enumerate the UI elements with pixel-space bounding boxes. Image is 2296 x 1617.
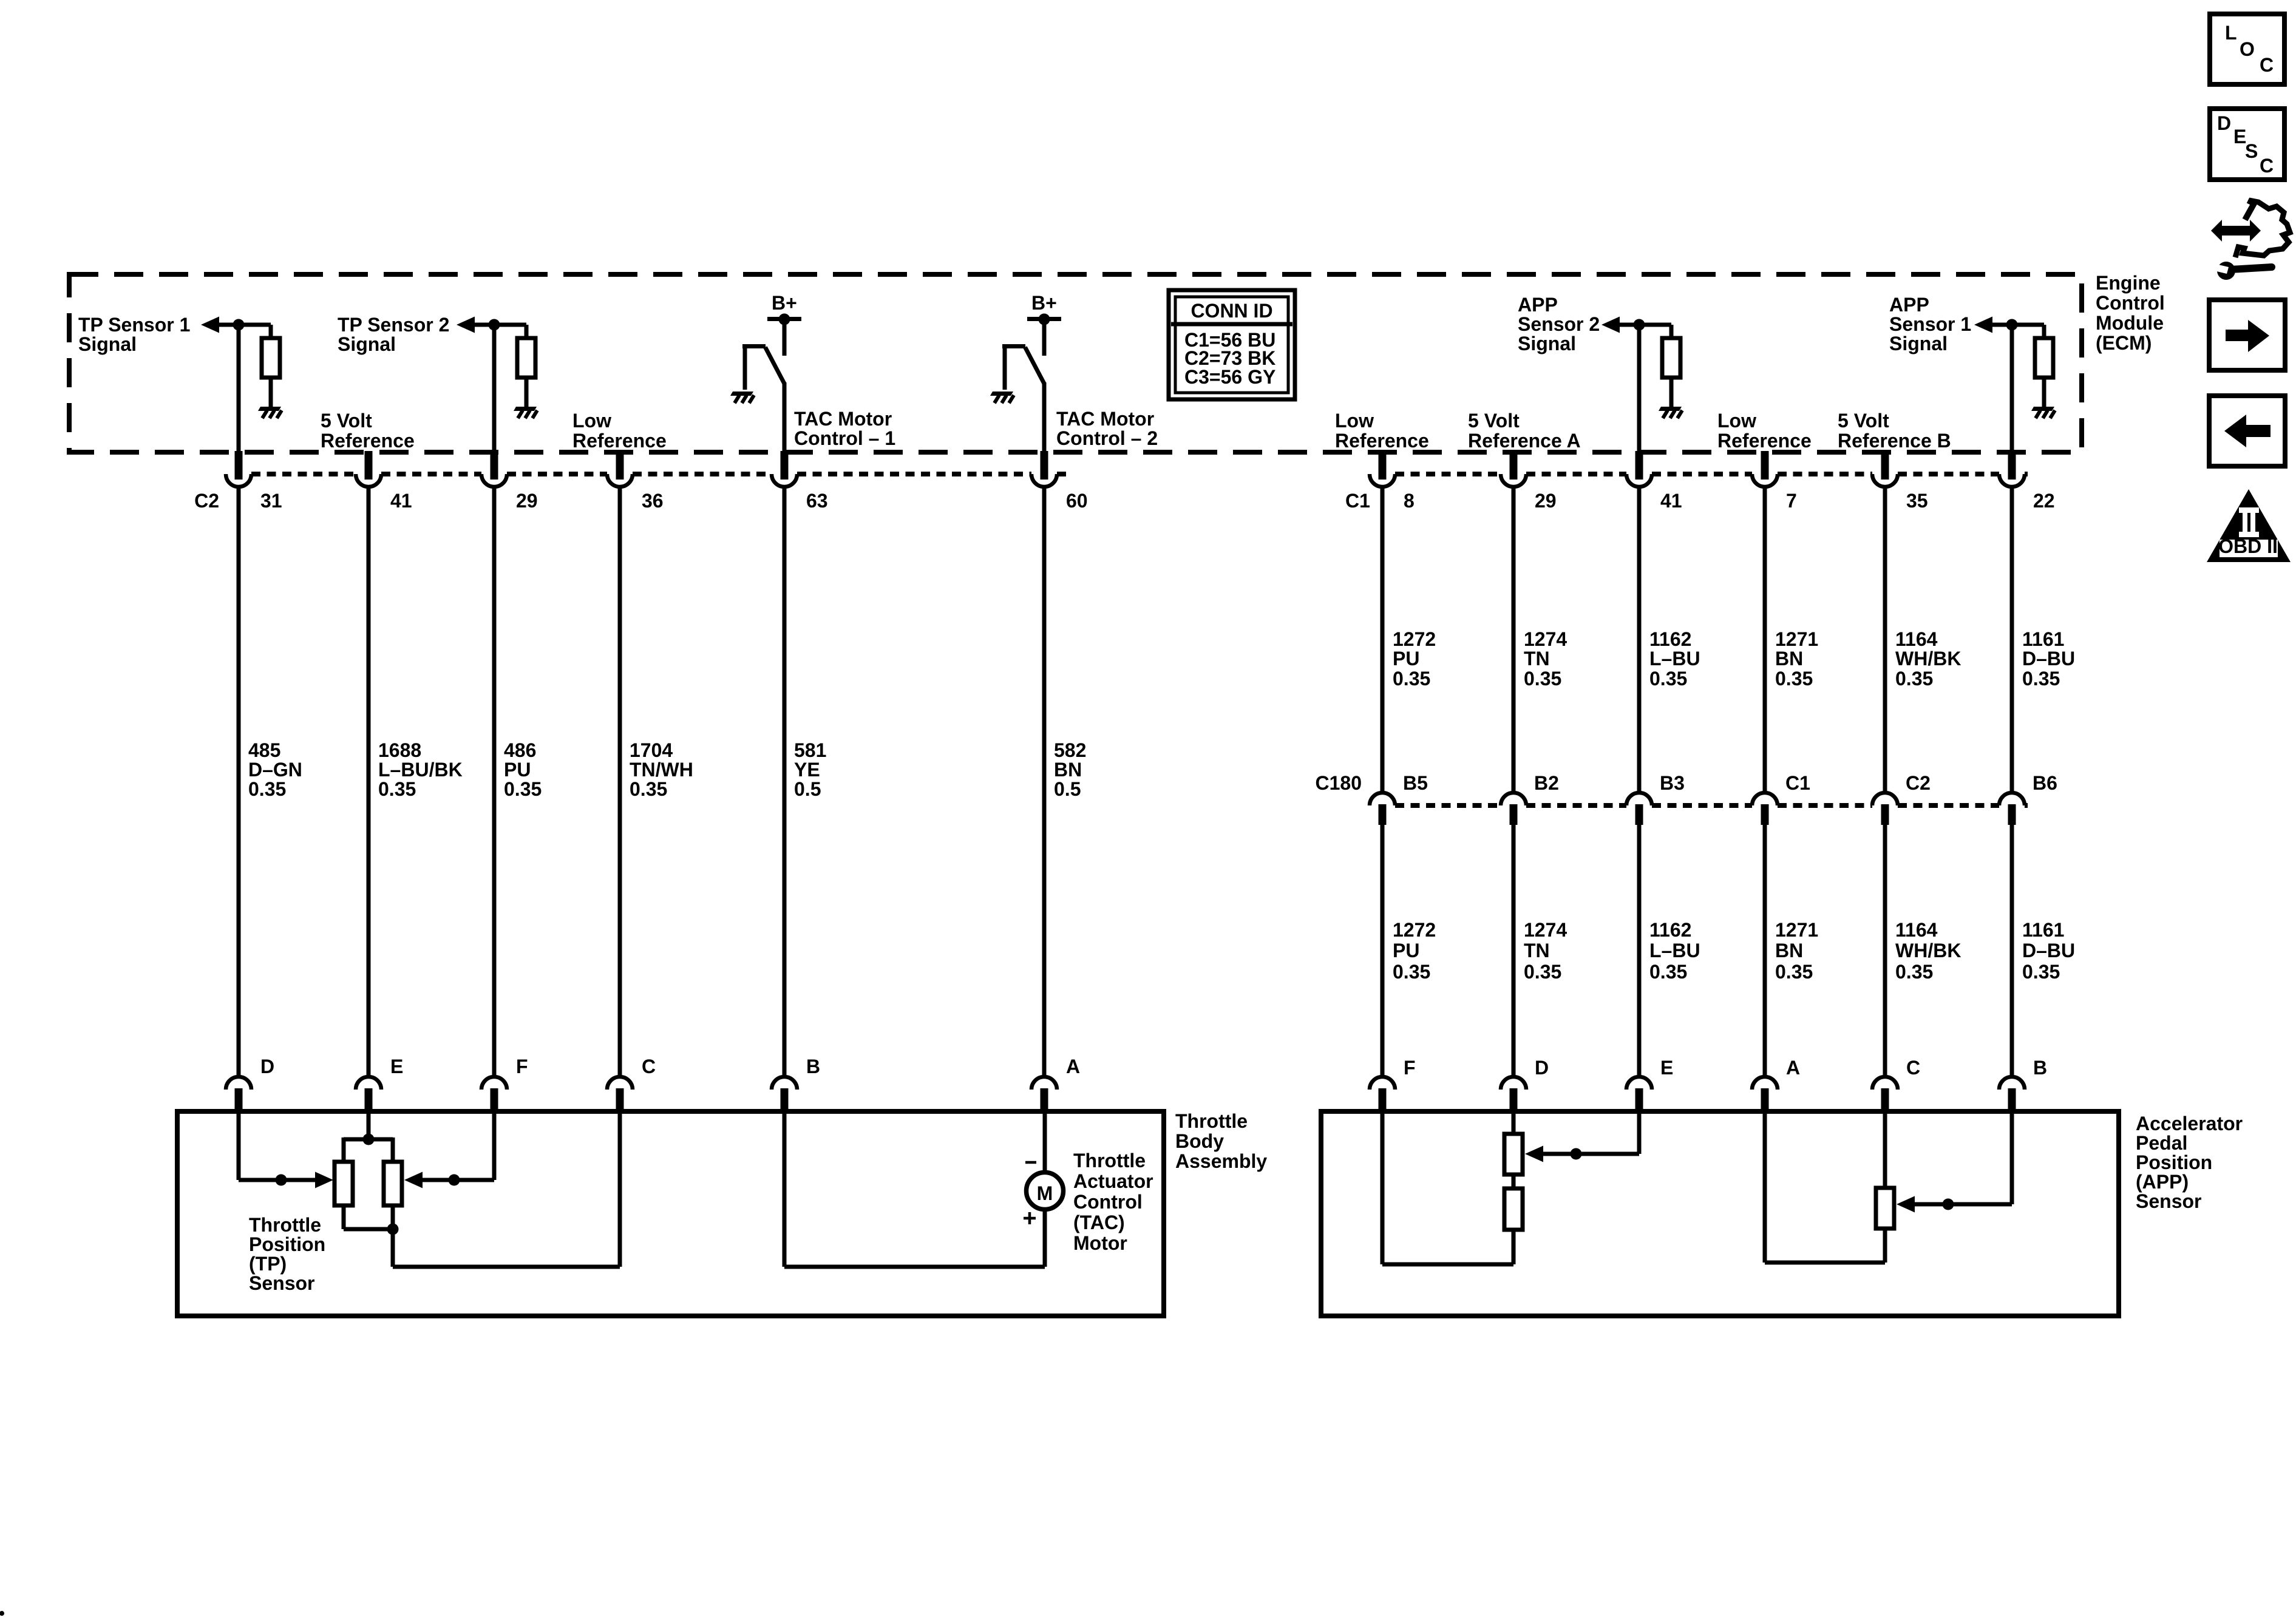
svg-text:C1: C1 bbox=[1785, 772, 1810, 794]
svg-text:Throttle: Throttle bbox=[249, 1214, 321, 1236]
svg-text:E: E bbox=[1660, 1057, 1673, 1079]
svg-text:C2: C2 bbox=[194, 490, 219, 512]
svg-text:0.35: 0.35 bbox=[1524, 961, 1561, 983]
svg-text:1271: 1271 bbox=[1775, 919, 1818, 941]
svg-text:TN/WH: TN/WH bbox=[630, 759, 693, 781]
svg-text:1688: 1688 bbox=[378, 739, 421, 761]
svg-text:YE: YE bbox=[794, 759, 820, 781]
svg-text:1704: 1704 bbox=[630, 739, 673, 761]
svg-text:Assembly: Assembly bbox=[1175, 1150, 1267, 1172]
svg-text:0.35: 0.35 bbox=[1393, 961, 1430, 983]
svg-text:F: F bbox=[516, 1056, 528, 1077]
svg-text:Reference: Reference bbox=[1717, 430, 1812, 452]
svg-text:B+: B+ bbox=[1031, 292, 1057, 314]
svg-text:41: 41 bbox=[390, 490, 412, 512]
svg-text:63: 63 bbox=[806, 490, 828, 512]
svg-text:0.35: 0.35 bbox=[504, 778, 542, 800]
svg-text:5 Volt: 5 Volt bbox=[321, 410, 372, 432]
svg-text:L–BU: L–BU bbox=[1649, 940, 1700, 961]
svg-text:1274: 1274 bbox=[1524, 628, 1567, 650]
svg-text:0.35: 0.35 bbox=[2022, 668, 2060, 690]
svg-text:O: O bbox=[2240, 38, 2255, 60]
svg-text:CONN ID: CONN ID bbox=[1190, 300, 1272, 322]
svg-text:582: 582 bbox=[1054, 739, 1086, 761]
svg-text:Body: Body bbox=[1175, 1130, 1224, 1152]
svg-text:0.5: 0.5 bbox=[794, 778, 821, 800]
svg-text:(ECM): (ECM) bbox=[2096, 332, 2152, 354]
svg-text:Low: Low bbox=[572, 410, 611, 432]
svg-text:(APP): (APP) bbox=[2136, 1171, 2189, 1193]
svg-text:APP: APP bbox=[1518, 294, 1558, 316]
svg-text:(TP): (TP) bbox=[249, 1253, 287, 1275]
svg-text:1271: 1271 bbox=[1775, 628, 1818, 650]
svg-text:TN: TN bbox=[1524, 940, 1550, 961]
svg-text:TP Sensor 2: TP Sensor 2 bbox=[338, 314, 449, 336]
svg-text:Sensor: Sensor bbox=[249, 1272, 314, 1294]
svg-text:WH/BK: WH/BK bbox=[1895, 940, 1961, 961]
svg-text:D–BU: D–BU bbox=[2022, 648, 2075, 670]
svg-text:Signal: Signal bbox=[1889, 333, 1948, 354]
svg-text:Reference B: Reference B bbox=[1838, 430, 1951, 452]
svg-text:TAC Motor: TAC Motor bbox=[794, 408, 892, 430]
svg-text:C3=56 GY: C3=56 GY bbox=[1184, 366, 1275, 388]
svg-text:PU: PU bbox=[504, 759, 531, 781]
svg-text:1161: 1161 bbox=[2022, 628, 2064, 650]
svg-text:Position: Position bbox=[249, 1233, 325, 1255]
svg-text:TN: TN bbox=[1524, 648, 1550, 670]
svg-text:C: C bbox=[642, 1056, 656, 1077]
svg-text:B: B bbox=[2033, 1057, 2047, 1079]
svg-text:C1: C1 bbox=[1345, 490, 1370, 512]
svg-text:L–BU/BK: L–BU/BK bbox=[378, 759, 463, 781]
svg-text:TP Sensor 1: TP Sensor 1 bbox=[78, 314, 190, 336]
svg-text:Motor: Motor bbox=[1073, 1232, 1127, 1254]
svg-text:APP: APP bbox=[1889, 294, 1929, 316]
svg-text:BN: BN bbox=[1775, 940, 1803, 961]
svg-text:Sensor 1: Sensor 1 bbox=[1889, 313, 1971, 335]
svg-text:D–BU: D–BU bbox=[2022, 940, 2075, 961]
svg-text:B5: B5 bbox=[1403, 772, 1428, 794]
svg-text:Position: Position bbox=[2136, 1151, 2212, 1173]
svg-text:29: 29 bbox=[516, 490, 538, 512]
svg-text:Accelerator: Accelerator bbox=[2136, 1113, 2243, 1134]
svg-text:Reference: Reference bbox=[321, 430, 415, 452]
svg-text:C2: C2 bbox=[1906, 772, 1931, 794]
svg-text:1161: 1161 bbox=[2022, 919, 2064, 941]
svg-text:B: B bbox=[806, 1056, 820, 1077]
svg-text:D: D bbox=[2217, 112, 2231, 134]
svg-text:Reference: Reference bbox=[1335, 430, 1429, 452]
svg-text:Low: Low bbox=[1335, 410, 1374, 432]
svg-text:60: 60 bbox=[1066, 490, 1088, 512]
svg-text:1272: 1272 bbox=[1393, 628, 1436, 650]
svg-text:S: S bbox=[2245, 140, 2258, 162]
svg-text:BN: BN bbox=[1775, 648, 1803, 670]
svg-text:1272: 1272 bbox=[1393, 919, 1436, 941]
svg-text:TAC Motor: TAC Motor bbox=[1056, 408, 1154, 430]
svg-text:0.35: 0.35 bbox=[1895, 668, 1933, 690]
svg-text:0.35: 0.35 bbox=[1775, 961, 1813, 983]
svg-text:C: C bbox=[2260, 155, 2274, 177]
svg-text:(TAC): (TAC) bbox=[1073, 1212, 1125, 1233]
svg-text:Pedal: Pedal bbox=[2136, 1132, 2187, 1154]
svg-text:0.35: 0.35 bbox=[2022, 961, 2060, 983]
svg-text:Control – 1: Control – 1 bbox=[794, 427, 895, 449]
svg-text:B6: B6 bbox=[2033, 772, 2057, 794]
svg-text:PU: PU bbox=[1393, 940, 1419, 961]
svg-text:C180: C180 bbox=[1316, 772, 1362, 794]
svg-text:0.35: 0.35 bbox=[1775, 668, 1813, 690]
svg-text:Control: Control bbox=[2096, 292, 2165, 314]
svg-text:D: D bbox=[1535, 1057, 1549, 1079]
svg-text:Throttle: Throttle bbox=[1175, 1110, 1248, 1132]
svg-text:1274: 1274 bbox=[1524, 919, 1567, 941]
svg-text:Reference: Reference bbox=[572, 430, 667, 452]
svg-text:M: M bbox=[1037, 1182, 1053, 1204]
svg-text:581: 581 bbox=[794, 739, 826, 761]
svg-text:C: C bbox=[2260, 54, 2274, 76]
svg-text:E: E bbox=[390, 1056, 403, 1077]
svg-text:Sensor: Sensor bbox=[2136, 1190, 2201, 1212]
svg-text:Control – 2: Control – 2 bbox=[1056, 427, 1158, 449]
svg-text:35: 35 bbox=[1906, 490, 1928, 512]
svg-text:Engine: Engine bbox=[2096, 272, 2161, 294]
svg-text:485: 485 bbox=[248, 739, 280, 761]
svg-text:29: 29 bbox=[1535, 490, 1557, 512]
svg-text:OBD II: OBD II bbox=[2218, 535, 2278, 557]
svg-text:WH/BK: WH/BK bbox=[1895, 648, 1961, 670]
svg-text:31: 31 bbox=[260, 490, 282, 512]
svg-text:7: 7 bbox=[1786, 490, 1797, 512]
svg-text:Throttle: Throttle bbox=[1073, 1150, 1146, 1171]
svg-text:Actuator: Actuator bbox=[1073, 1170, 1153, 1192]
svg-text:486: 486 bbox=[504, 739, 536, 761]
svg-text:D–GN: D–GN bbox=[248, 759, 302, 781]
svg-text:Signal: Signal bbox=[1518, 333, 1576, 354]
svg-text:Reference A: Reference A bbox=[1468, 430, 1581, 452]
svg-text:1164: 1164 bbox=[1895, 919, 1938, 941]
svg-text:36: 36 bbox=[642, 490, 664, 512]
svg-text:B2: B2 bbox=[1534, 772, 1559, 794]
svg-text:1164: 1164 bbox=[1895, 628, 1938, 650]
svg-text:0.35: 0.35 bbox=[248, 778, 286, 800]
svg-text:8: 8 bbox=[1404, 490, 1415, 512]
svg-text:1162: 1162 bbox=[1649, 919, 1691, 941]
svg-text:0.35: 0.35 bbox=[630, 778, 667, 800]
svg-text:BN: BN bbox=[1054, 759, 1082, 781]
svg-text:0.35: 0.35 bbox=[1393, 668, 1430, 690]
svg-text:0.35: 0.35 bbox=[1649, 961, 1687, 983]
svg-text:5 Volt: 5 Volt bbox=[1838, 410, 1889, 432]
svg-text:PU: PU bbox=[1393, 648, 1419, 670]
svg-text:Low: Low bbox=[1717, 410, 1756, 432]
svg-text:0.35: 0.35 bbox=[1895, 961, 1933, 983]
svg-text:Sensor 2: Sensor 2 bbox=[1518, 313, 1600, 335]
svg-text:L–BU: L–BU bbox=[1649, 648, 1700, 670]
svg-text:5 Volt: 5 Volt bbox=[1468, 410, 1520, 432]
svg-text:0.5: 0.5 bbox=[1054, 778, 1081, 800]
svg-text:A: A bbox=[1066, 1056, 1080, 1077]
svg-text:B+: B+ bbox=[772, 292, 797, 314]
svg-text:0.35: 0.35 bbox=[378, 778, 416, 800]
svg-text:41: 41 bbox=[1660, 490, 1682, 512]
svg-text:L: L bbox=[2225, 22, 2237, 44]
svg-text:D: D bbox=[260, 1056, 274, 1077]
svg-text:0.35: 0.35 bbox=[1524, 668, 1561, 690]
svg-text:B3: B3 bbox=[1660, 772, 1685, 794]
svg-text:Control: Control bbox=[1073, 1191, 1143, 1213]
svg-text:Module: Module bbox=[2096, 312, 2164, 334]
svg-text:Signal: Signal bbox=[78, 333, 137, 355]
svg-text:F: F bbox=[1404, 1057, 1416, 1079]
svg-text:A: A bbox=[1786, 1057, 1800, 1079]
svg-text:Signal: Signal bbox=[338, 333, 396, 355]
svg-text:1162: 1162 bbox=[1649, 628, 1691, 650]
svg-text:22: 22 bbox=[2033, 490, 2055, 512]
svg-text:0.35: 0.35 bbox=[1649, 668, 1687, 690]
svg-text:C: C bbox=[1906, 1057, 1920, 1079]
